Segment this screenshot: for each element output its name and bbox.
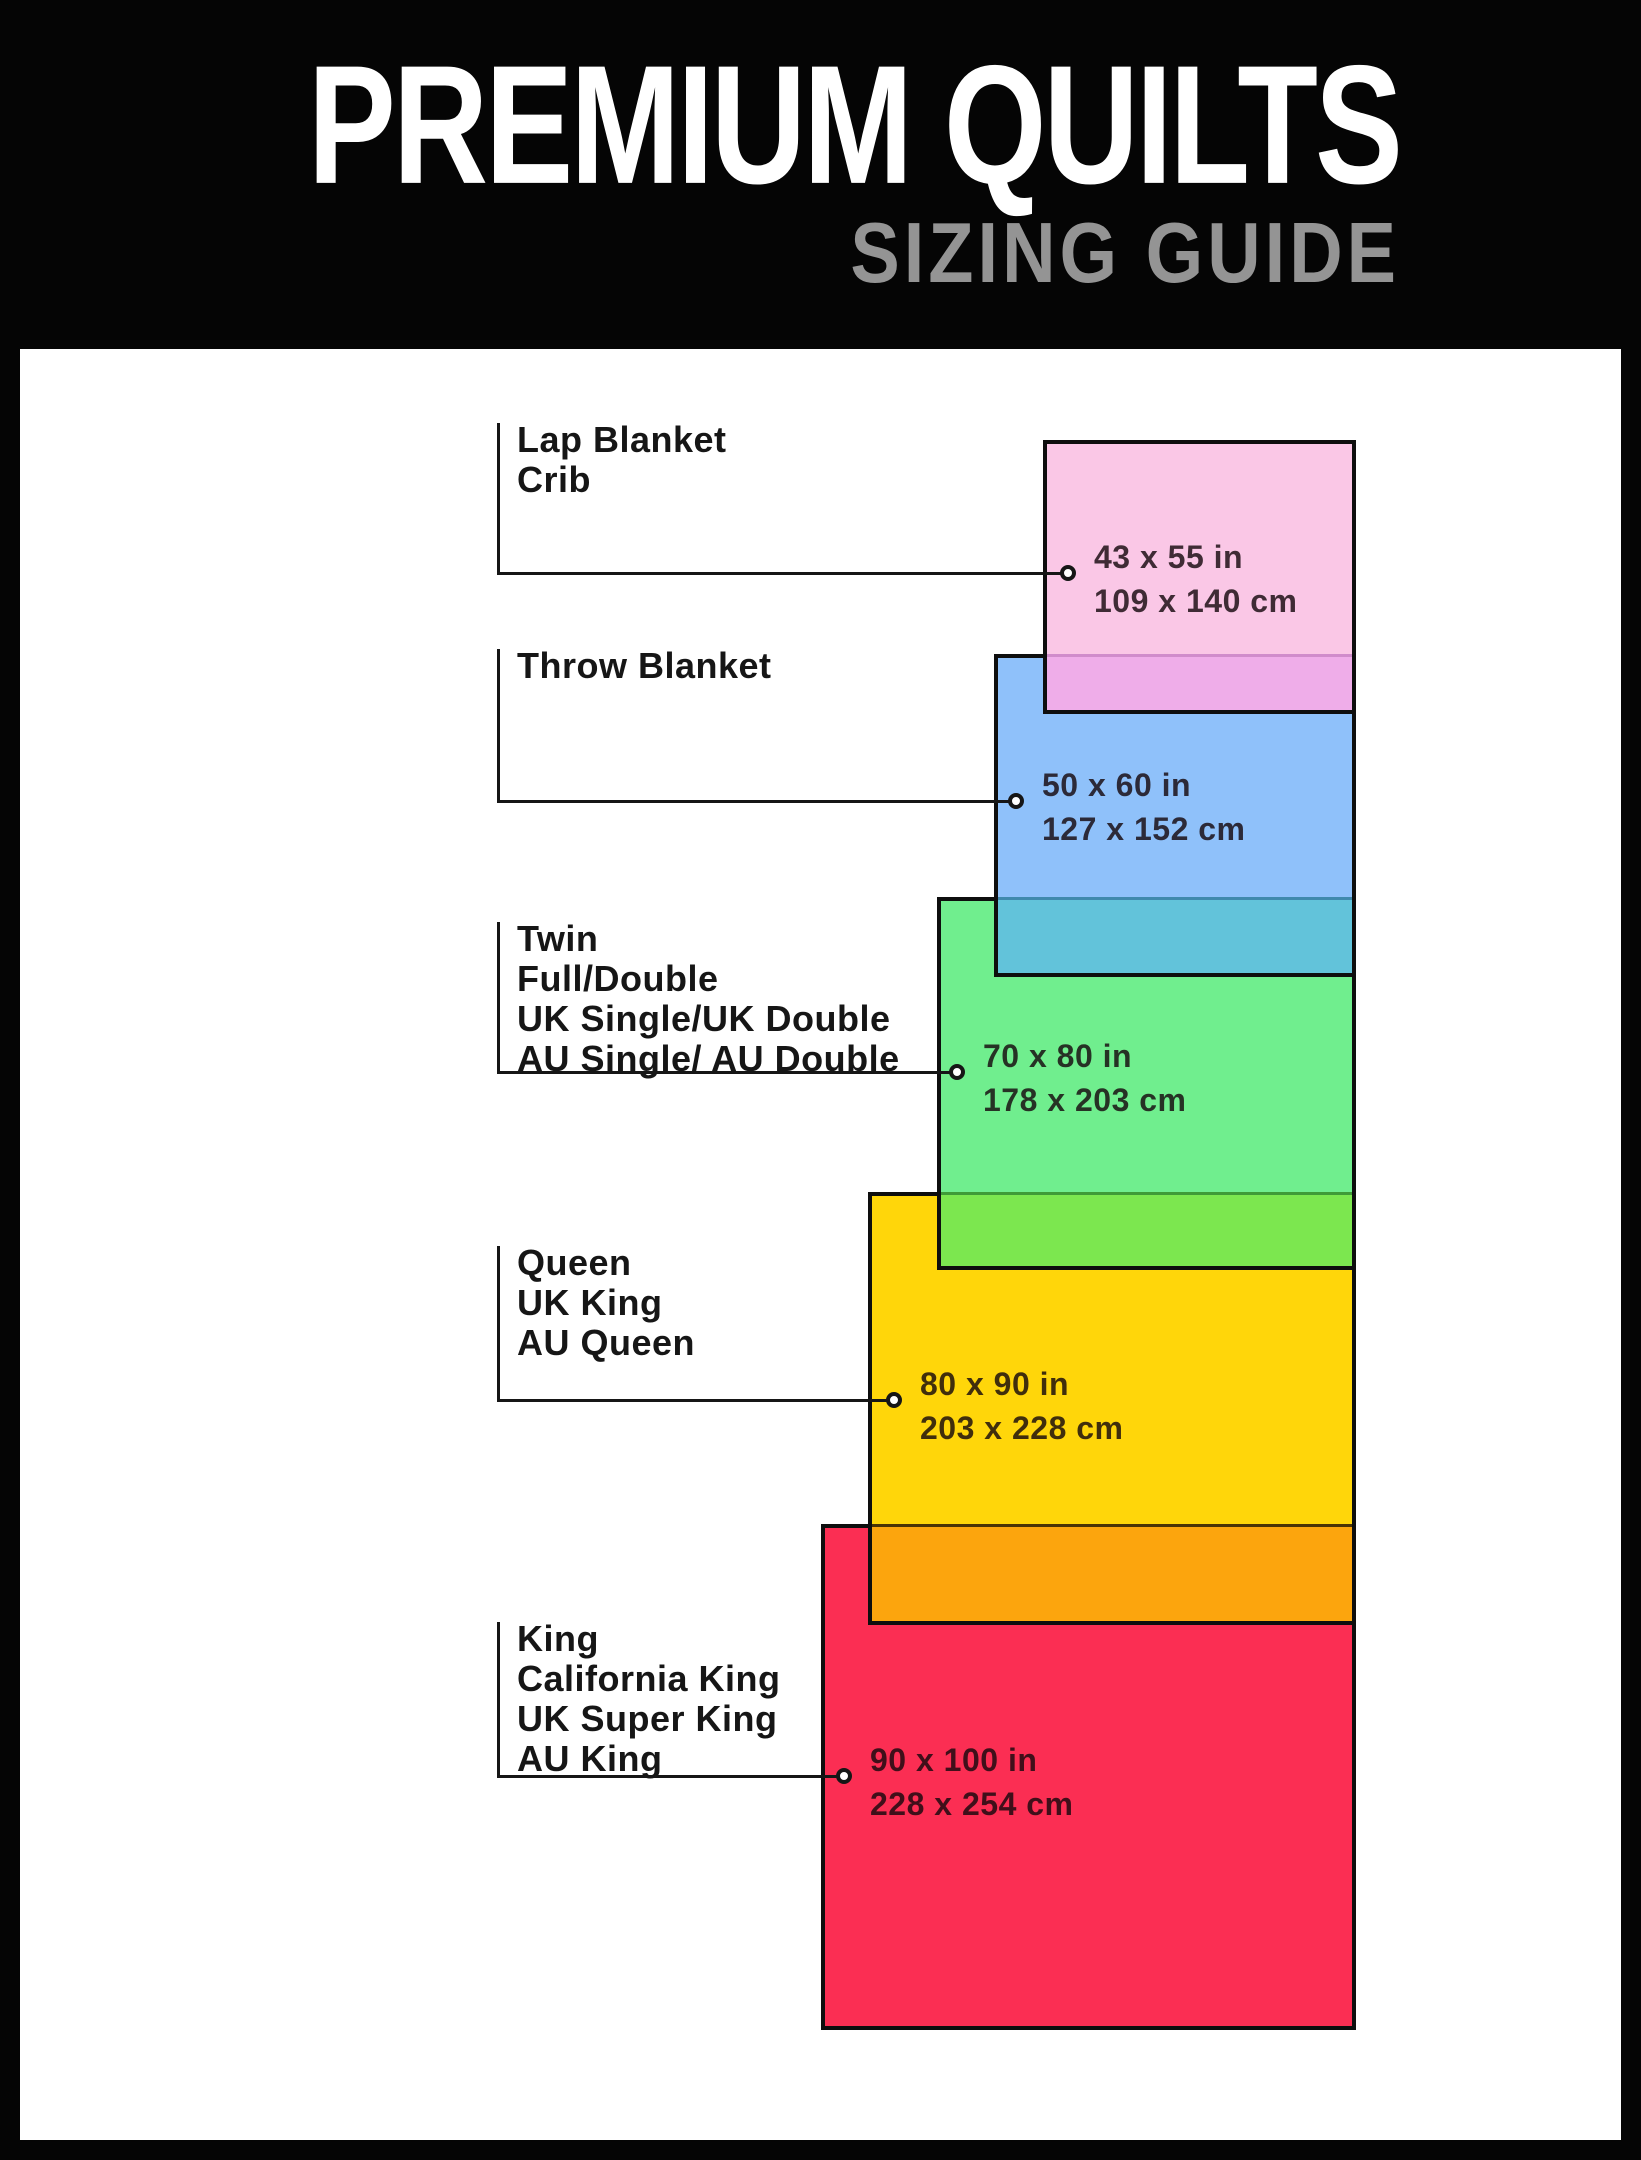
label-king-2: UK Super King	[517, 1699, 781, 1739]
label-group-queen: QueenUK KingAU Queen	[517, 1243, 695, 1363]
connector-dot-throw-blanket	[1008, 793, 1024, 809]
connector-dot-queen	[886, 1392, 902, 1408]
connector-hline-throw-blanket	[497, 800, 1016, 803]
label-lap-blanket-crib-0: Lap Blanket	[517, 420, 727, 460]
dimension-text-twin-full-double: 70 x 80 in178 x 203 cm	[983, 1034, 1187, 1122]
overlap-band-lap-blanket-crib	[1047, 654, 1352, 710]
overlap-band-throw-blanket	[998, 897, 1352, 973]
connector-dot-king	[836, 1768, 852, 1784]
dimension-text-queen: 80 x 90 in203 x 228 cm	[920, 1362, 1124, 1450]
label-group-twin-full-double: TwinFull/DoubleUK Single/UK DoubleAU Sin…	[517, 919, 900, 1079]
dimension-cm-queen: 203 x 228 cm	[920, 1406, 1124, 1450]
connector-dot-twin-full-double	[949, 1064, 965, 1080]
label-throw-blanket-0: Throw Blanket	[517, 646, 772, 686]
label-group-lap-blanket-crib: Lap BlanketCrib	[517, 420, 727, 500]
connector-hline-lap-blanket-crib	[497, 572, 1068, 575]
dimension-inches-queen: 80 x 90 in	[920, 1362, 1124, 1406]
dimension-inches-king: 90 x 100 in	[870, 1738, 1074, 1782]
dimension-text-throw-blanket: 50 x 60 in127 x 152 cm	[1042, 763, 1246, 851]
sizing-guide-infographic: PREMIUM QUILTS SIZING GUIDE Lap BlanketC…	[0, 0, 1641, 2160]
label-twin-full-double-0: Twin	[517, 919, 900, 959]
overlap-band-twin-full-double	[941, 1192, 1352, 1266]
connector-hline-queen	[497, 1399, 894, 1402]
label-group-king: KingCalifornia KingUK Super KingAU King	[517, 1619, 781, 1779]
label-twin-full-double-2: UK Single/UK Double	[517, 999, 900, 1039]
connector-vline-lap-blanket-crib	[497, 423, 500, 573]
dimension-text-king: 90 x 100 in228 x 254 cm	[870, 1738, 1074, 1826]
connector-vline-twin-full-double	[497, 922, 500, 1072]
page-subtitle: SIZING GUIDE	[850, 204, 1400, 302]
dimension-inches-lap-blanket-crib: 43 x 55 in	[1094, 535, 1298, 579]
label-group-throw-blanket: Throw Blanket	[517, 646, 772, 686]
label-queen-2: AU Queen	[517, 1323, 695, 1363]
label-queen-0: Queen	[517, 1243, 695, 1283]
label-twin-full-double-1: Full/Double	[517, 959, 900, 999]
connector-vline-queen	[497, 1246, 500, 1400]
connector-hline-twin-full-double	[497, 1071, 957, 1074]
page-title: PREMIUM QUILTS	[308, 28, 1400, 221]
connector-vline-king	[497, 1622, 500, 1776]
dimension-inches-throw-blanket: 50 x 60 in	[1042, 763, 1246, 807]
dimension-cm-lap-blanket-crib: 109 x 140 cm	[1094, 579, 1298, 623]
label-lap-blanket-crib-1: Crib	[517, 460, 727, 500]
label-king-3: AU King	[517, 1739, 781, 1779]
label-king-1: California King	[517, 1659, 781, 1699]
label-king-0: King	[517, 1619, 781, 1659]
overlap-band-queen	[872, 1524, 1352, 1621]
connector-hline-king	[497, 1775, 844, 1778]
dimension-cm-king: 228 x 254 cm	[870, 1782, 1074, 1826]
connector-dot-lap-blanket-crib	[1060, 565, 1076, 581]
label-queen-1: UK King	[517, 1283, 695, 1323]
dimension-cm-throw-blanket: 127 x 152 cm	[1042, 807, 1246, 851]
dimension-text-lap-blanket-crib: 43 x 55 in109 x 140 cm	[1094, 535, 1298, 623]
dimension-inches-twin-full-double: 70 x 80 in	[983, 1034, 1187, 1078]
dimension-cm-twin-full-double: 178 x 203 cm	[983, 1078, 1187, 1122]
connector-vline-throw-blanket	[497, 649, 500, 801]
